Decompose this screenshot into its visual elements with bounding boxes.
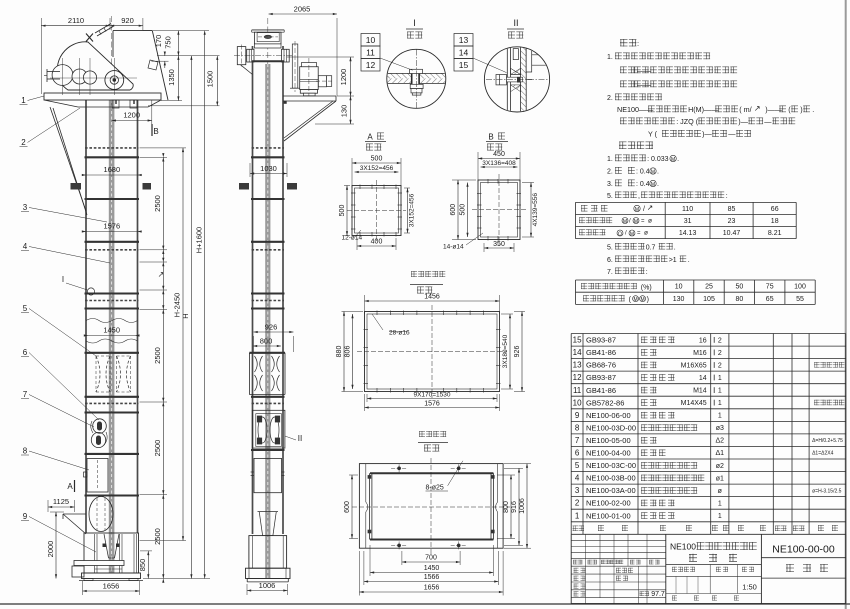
svg-text:2: 2 <box>718 350 722 357</box>
svg-text:1.: 1. <box>607 156 613 163</box>
svg-text:M: M <box>641 297 645 303</box>
svg-text:M14X45: M14X45 <box>681 400 707 407</box>
svg-text:1: 1 <box>718 400 722 407</box>
svg-text:M16X65: M16X65 <box>681 362 707 369</box>
svg-text:2.: 2. <box>607 169 613 176</box>
svg-text:1006: 1006 <box>519 498 526 514</box>
svg-text:880: 880 <box>336 346 343 358</box>
svg-text:1450: 1450 <box>103 326 120 335</box>
svg-text:170: 170 <box>154 35 163 48</box>
svg-text:——: —— <box>637 68 651 75</box>
svg-text:>1: >1 <box>669 257 677 264</box>
svg-text:10.47: 10.47 <box>723 230 741 237</box>
svg-text:——: —— <box>637 82 651 89</box>
svg-text::: : <box>646 269 648 276</box>
svg-text:23: 23 <box>728 218 736 225</box>
svg-text:.: . <box>657 169 659 176</box>
svg-text:750: 750 <box>164 36 173 49</box>
svg-text:500: 500 <box>371 156 383 163</box>
svg-text:M14: M14 <box>693 388 707 395</box>
svg-text:NE100-04-00: NE100-04-00 <box>586 449 631 458</box>
svg-text:: 0.4: : 0.4 <box>636 181 650 188</box>
svg-text:=: = <box>637 231 641 237</box>
svg-text:1: 1 <box>718 388 722 395</box>
svg-text:M: M <box>651 170 655 176</box>
svg-text:2500: 2500 <box>153 347 162 364</box>
svg-text:M: M <box>635 207 639 213</box>
svg-text:1: 1 <box>718 375 722 382</box>
svg-text:12: 12 <box>366 60 376 70</box>
svg-text:(%): (%) <box>641 285 652 292</box>
svg-text:)—: )— <box>738 117 748 126</box>
svg-text:)—: )— <box>702 130 712 139</box>
svg-text:1: 1 <box>718 413 722 420</box>
svg-text:14.13: 14.13 <box>679 230 697 237</box>
svg-text:2: 2 <box>21 138 26 147</box>
svg-text:28-ø16: 28-ø16 <box>389 330 410 337</box>
svg-text:II: II <box>298 434 302 443</box>
svg-text:II: II <box>513 18 518 28</box>
svg-text:1576: 1576 <box>424 400 440 407</box>
svg-text:NE100-00-00: NE100-00-00 <box>772 544 835 556</box>
svg-text:Y (: Y ( <box>648 130 658 139</box>
svg-text:2: 2 <box>718 362 722 369</box>
svg-text:GB68-76: GB68-76 <box>586 361 616 370</box>
svg-text:3X180=540: 3X180=540 <box>502 334 509 368</box>
svg-text:3X152=456: 3X152=456 <box>360 165 394 172</box>
svg-text:100: 100 <box>794 284 806 291</box>
svg-text:NE100: NE100 <box>670 542 696 552</box>
svg-text:M: M <box>623 219 627 225</box>
svg-text:1680: 1680 <box>103 165 120 174</box>
svg-text:ø2: ø2 <box>716 463 724 470</box>
svg-text:NE100-03A-00: NE100-03A-00 <box>586 486 636 495</box>
svg-text:916: 916 <box>511 501 518 513</box>
svg-text:14-ø14: 14-ø14 <box>443 244 464 251</box>
svg-text:1200: 1200 <box>339 69 348 86</box>
svg-text:4: 4 <box>23 242 28 251</box>
svg-text:NE100-02-00: NE100-02-00 <box>586 499 631 508</box>
svg-text:NE100-01-00: NE100-01-00 <box>586 511 631 520</box>
svg-text:5: 5 <box>575 461 580 470</box>
svg-text:55: 55 <box>796 296 804 303</box>
svg-text:—: — <box>728 130 736 139</box>
svg-text:600: 600 <box>450 204 457 216</box>
svg-text:6: 6 <box>23 348 28 357</box>
svg-text:1:50: 1:50 <box>742 583 757 592</box>
svg-text:9X170=1530: 9X170=1530 <box>413 391 450 398</box>
svg-text:926: 926 <box>514 346 521 358</box>
svg-text:2: 2 <box>718 337 722 344</box>
svg-text:9: 9 <box>23 512 28 521</box>
svg-text:1566: 1566 <box>424 574 440 581</box>
svg-text:15: 15 <box>573 336 582 345</box>
svg-text:1350: 1350 <box>167 69 176 86</box>
svg-text:): ) <box>647 297 649 304</box>
svg-text:M: M <box>671 157 675 163</box>
svg-text:NE100-03B-00: NE100-03B-00 <box>586 474 636 483</box>
svg-text:1656: 1656 <box>103 582 120 591</box>
svg-text:66: 66 <box>771 206 779 213</box>
svg-text::: : <box>637 39 639 48</box>
svg-text:4: 4 <box>575 474 580 483</box>
svg-text:B: B <box>488 133 493 142</box>
svg-text:700: 700 <box>425 555 437 562</box>
svg-text:NE100-06-00: NE100-06-00 <box>586 411 631 420</box>
svg-text:1006: 1006 <box>259 581 276 590</box>
svg-text:1500: 1500 <box>206 71 215 88</box>
svg-text:3X136=408: 3X136=408 <box>482 160 516 167</box>
svg-text:): ) <box>800 105 802 114</box>
svg-text:600: 600 <box>344 501 351 513</box>
svg-text:31: 31 <box>684 218 692 225</box>
svg-text:7: 7 <box>575 436 580 445</box>
svg-text:16: 16 <box>699 337 707 344</box>
svg-text:↗: ↗ <box>158 270 165 279</box>
svg-text:.: . <box>688 257 690 264</box>
svg-text:,: , <box>638 193 640 200</box>
svg-text:NE100-03D-00: NE100-03D-00 <box>586 423 636 432</box>
svg-text:( m/: ( m/ <box>739 105 751 114</box>
svg-text:ø: ø <box>718 488 723 495</box>
svg-text:ø1: ø1 <box>716 475 724 482</box>
svg-text:1576: 1576 <box>103 222 120 231</box>
svg-text:1: 1 <box>21 96 26 105</box>
svg-text:13: 13 <box>573 361 582 370</box>
svg-text:920: 920 <box>121 16 134 25</box>
svg-text:6: 6 <box>575 449 580 458</box>
svg-text:3X152=456: 3X152=456 <box>409 193 416 227</box>
svg-text:800: 800 <box>260 337 273 346</box>
svg-text:GB93-87: GB93-87 <box>586 336 616 345</box>
svg-text:130: 130 <box>340 105 349 118</box>
svg-text:1656: 1656 <box>424 585 440 592</box>
svg-text:500: 500 <box>339 205 346 217</box>
svg-text:M: M <box>651 182 655 188</box>
svg-text:10: 10 <box>573 398 582 407</box>
svg-text:1: 1 <box>718 513 722 520</box>
svg-text:10: 10 <box>675 284 683 291</box>
svg-text:1: 1 <box>718 500 722 507</box>
svg-text:2000: 2000 <box>46 541 55 558</box>
svg-text::: : <box>651 142 653 151</box>
svg-text:: JZQ (: : JZQ ( <box>676 117 699 126</box>
svg-text:I: I <box>62 275 64 284</box>
svg-text:/: / <box>643 206 645 213</box>
svg-text:80: 80 <box>736 296 744 303</box>
svg-text:800: 800 <box>503 501 510 513</box>
svg-text:400: 400 <box>371 239 383 246</box>
svg-text:GB41-86: GB41-86 <box>586 348 616 357</box>
svg-text:↗: ↗ <box>647 203 653 212</box>
svg-text:NE100-03C-00: NE100-03C-00 <box>586 461 636 470</box>
svg-text:14: 14 <box>699 375 707 382</box>
svg-text:NE100-05-00: NE100-05-00 <box>586 436 631 445</box>
svg-text:2065: 2065 <box>294 5 311 14</box>
svg-text:14: 14 <box>459 48 469 58</box>
svg-text:2: 2 <box>575 499 580 508</box>
svg-text:ø3: ø3 <box>716 425 724 432</box>
svg-text:10: 10 <box>366 35 376 45</box>
svg-text:GB41-86: GB41-86 <box>586 386 616 395</box>
svg-text:ø: ø <box>644 230 648 237</box>
svg-text:5.: 5. <box>607 193 613 200</box>
svg-text:14: 14 <box>573 348 582 357</box>
svg-text:97.7: 97.7 <box>651 591 665 598</box>
svg-text:1: 1 <box>575 511 580 520</box>
svg-text:.: . <box>674 245 676 252</box>
svg-text:8: 8 <box>575 423 580 432</box>
svg-text:5.: 5. <box>607 245 613 252</box>
svg-text:.: . <box>657 181 659 188</box>
svg-text:7: 7 <box>23 390 28 399</box>
svg-text:.: . <box>812 105 814 114</box>
svg-text:0.7: 0.7 <box>646 245 656 252</box>
svg-text:Δ1=Δ2X4: Δ1=Δ2X4 <box>812 451 833 457</box>
svg-text:Δ1: Δ1 <box>716 450 725 457</box>
svg-text:105: 105 <box>703 296 715 303</box>
svg-text:1.: 1. <box>607 54 613 61</box>
svg-text:GB5782-86: GB5782-86 <box>586 398 624 407</box>
svg-text:2110: 2110 <box>68 16 84 25</box>
svg-text:15: 15 <box>459 60 469 70</box>
svg-text:: 0.4: : 0.4 <box>636 169 650 176</box>
svg-text:1450: 1450 <box>424 565 440 572</box>
svg-text:6.: 6. <box>607 257 613 264</box>
svg-text:2500: 2500 <box>153 195 162 212</box>
svg-text:8: 8 <box>23 447 28 456</box>
svg-text:M: M <box>630 232 634 238</box>
svg-text:500: 500 <box>460 204 467 216</box>
svg-text:7.: 7. <box>607 269 613 276</box>
svg-text:2.: 2. <box>607 95 613 102</box>
svg-text:GB93-87: GB93-87 <box>586 373 616 382</box>
svg-text:110: 110 <box>682 206 693 213</box>
svg-text:3: 3 <box>23 203 28 212</box>
svg-text:A: A <box>67 482 73 491</box>
svg-text:9: 9 <box>575 411 580 420</box>
svg-text:3: 3 <box>575 486 580 495</box>
svg-text:Δ2: Δ2 <box>716 438 725 445</box>
svg-text:ø: ø <box>648 218 652 225</box>
svg-text:18: 18 <box>771 218 779 225</box>
svg-text:3.: 3. <box>607 181 613 188</box>
svg-text:=: = <box>641 219 645 225</box>
svg-text:350: 350 <box>493 241 505 248</box>
svg-text:85: 85 <box>728 206 736 213</box>
svg-text:1456: 1456 <box>424 294 440 301</box>
svg-text:—: — <box>764 117 772 126</box>
svg-text::: : <box>726 193 728 200</box>
svg-text:25: 25 <box>705 284 713 291</box>
svg-text:Δ=H/0.2+5.75: Δ=H/0.2+5.75 <box>812 438 843 444</box>
svg-text:450: 450 <box>493 151 505 158</box>
svg-text:11: 11 <box>366 48 375 58</box>
svg-text:13: 13 <box>459 35 469 45</box>
svg-text:O: O <box>618 232 622 238</box>
svg-text:: 0.033: : 0.033 <box>647 156 669 163</box>
svg-text:130: 130 <box>673 296 685 303</box>
svg-text:4X139=556: 4X139=556 <box>532 193 539 227</box>
svg-text:11: 11 <box>573 386 582 395</box>
svg-text:.: . <box>677 156 679 163</box>
svg-text:1200: 1200 <box>123 111 140 120</box>
svg-text:806: 806 <box>345 346 352 358</box>
svg-text:H(M)——: H(M)—— <box>688 105 719 114</box>
svg-text:850: 850 <box>138 559 147 572</box>
svg-text:12-ø14: 12-ø14 <box>342 235 363 242</box>
svg-text:50: 50 <box>736 284 744 291</box>
svg-text:926: 926 <box>265 322 278 331</box>
svg-text:↗: ↗ <box>754 104 761 113</box>
svg-text:A: A <box>367 133 373 142</box>
svg-text:H: H <box>181 313 190 318</box>
svg-text:B: B <box>153 127 158 136</box>
svg-text:M16: M16 <box>693 350 707 357</box>
svg-text:2500: 2500 <box>153 528 162 545</box>
svg-text:8.21: 8.21 <box>768 230 782 237</box>
svg-text:H+1600: H+1600 <box>194 227 203 253</box>
svg-text:M: M <box>634 297 638 303</box>
svg-text:ø=H-3.15/2.5: ø=H-3.15/2.5 <box>812 488 842 494</box>
svg-text:I: I <box>413 18 416 28</box>
svg-text:1125: 1125 <box>53 497 69 506</box>
svg-text:8-ø25: 8-ø25 <box>426 485 444 492</box>
svg-text:1030: 1030 <box>260 164 277 173</box>
svg-text:12: 12 <box>573 373 582 382</box>
svg-text:65: 65 <box>766 296 774 303</box>
svg-text:75: 75 <box>766 284 774 291</box>
svg-text:2500: 2500 <box>153 440 162 457</box>
svg-text:M: M <box>634 219 638 225</box>
svg-text:5: 5 <box>23 304 28 313</box>
